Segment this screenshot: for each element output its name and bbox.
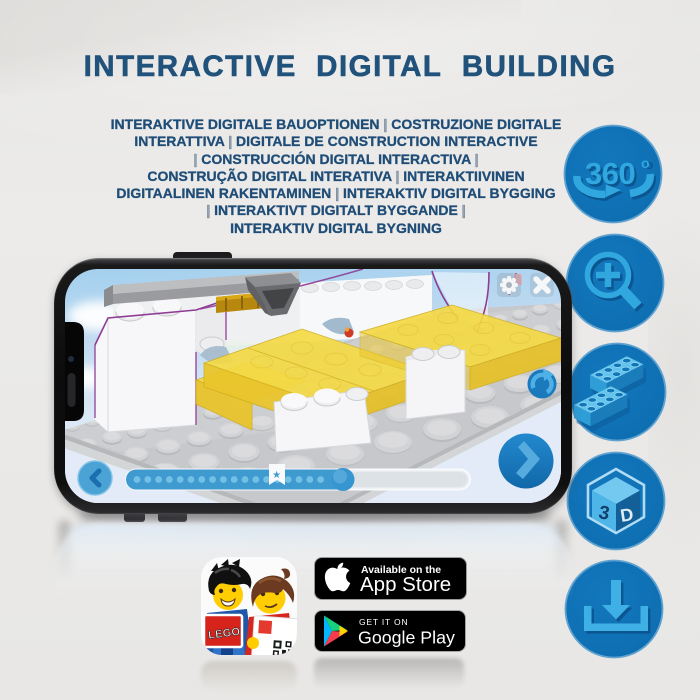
svg-text:Google Play: Google Play: [358, 628, 455, 648]
svg-text:o: o: [641, 155, 650, 171]
svg-text:360: 360: [585, 156, 635, 191]
svg-text:★: ★: [272, 470, 281, 481]
svg-text:GET IT ON: GET IT ON: [359, 617, 408, 627]
svg-text:App Store: App Store: [360, 573, 451, 596]
